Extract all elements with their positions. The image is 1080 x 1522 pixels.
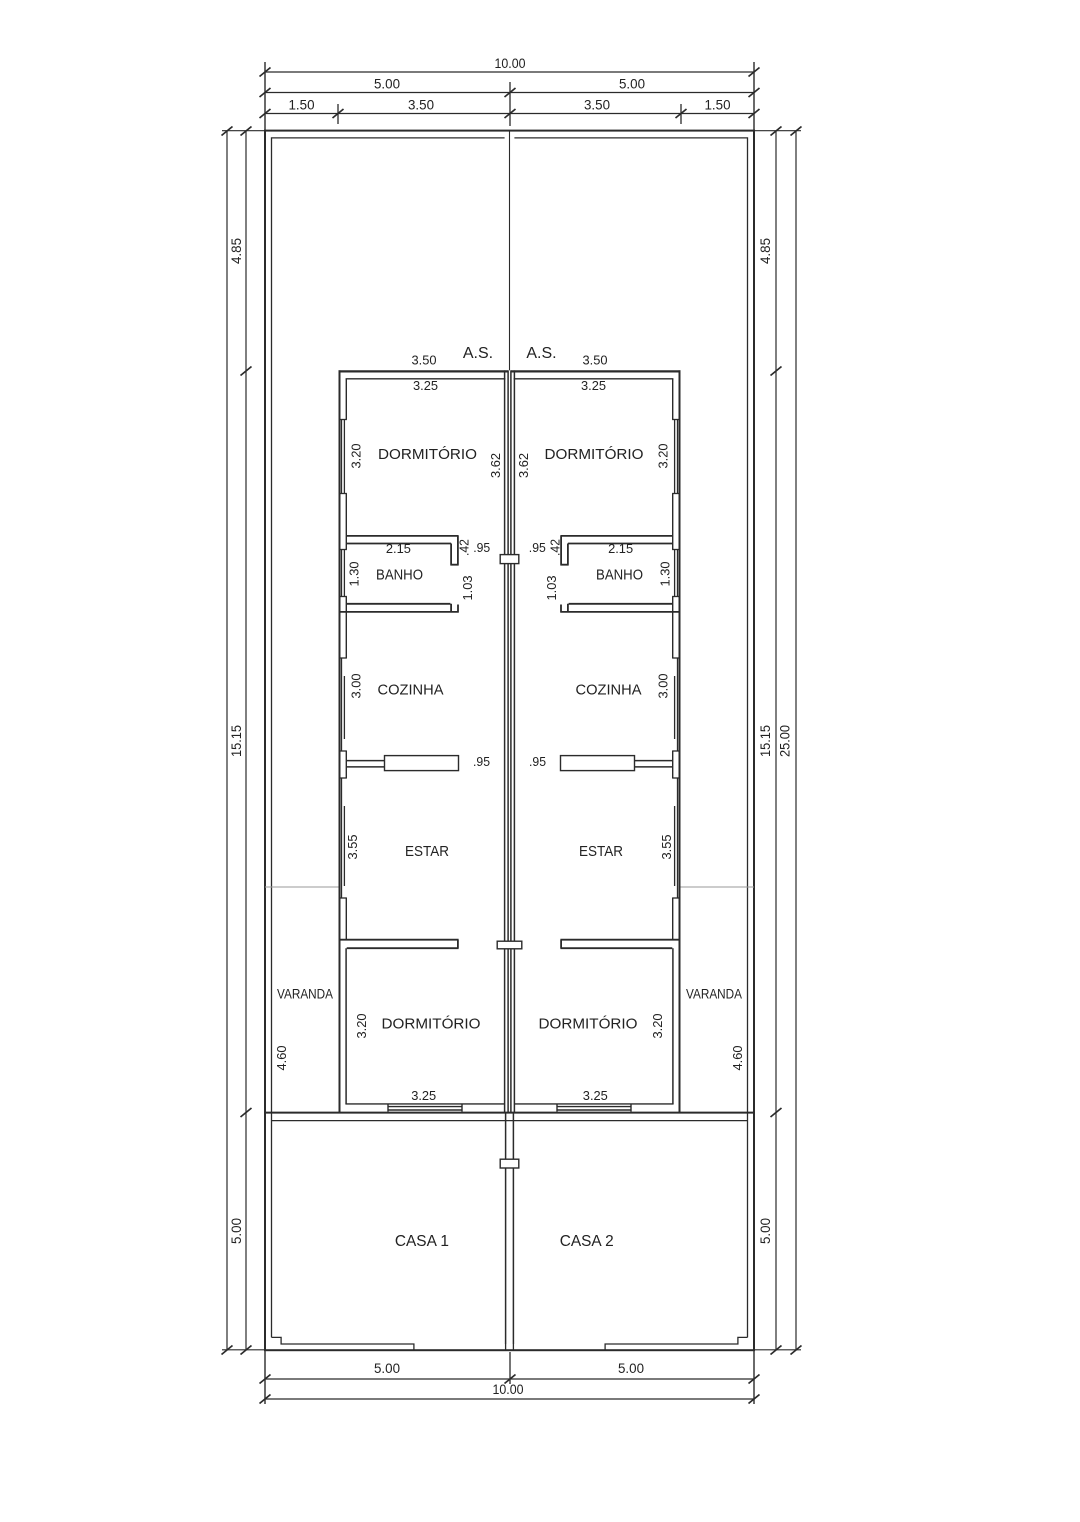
svg-text:ESTAR: ESTAR xyxy=(579,843,623,860)
svg-text:4.85: 4.85 xyxy=(229,238,244,264)
svg-text:VARANDA: VARANDA xyxy=(277,987,333,1002)
svg-text:3.20: 3.20 xyxy=(354,1014,369,1039)
svg-text:.95: .95 xyxy=(473,540,490,555)
svg-text:.42: .42 xyxy=(457,539,472,556)
svg-text:CASA 2: CASA 2 xyxy=(560,1233,614,1250)
svg-text:3.25: 3.25 xyxy=(413,378,438,393)
svg-text:3.50: 3.50 xyxy=(408,98,434,113)
svg-text:1.30: 1.30 xyxy=(658,562,673,587)
svg-text:1.50: 1.50 xyxy=(705,98,731,113)
svg-text:5.00: 5.00 xyxy=(374,1361,400,1376)
svg-text:A.S.: A.S. xyxy=(463,345,493,362)
svg-text:DORMITÓRIO: DORMITÓRIO xyxy=(539,1016,638,1033)
svg-text:4.60: 4.60 xyxy=(730,1046,745,1071)
svg-text:3.00: 3.00 xyxy=(349,674,364,699)
svg-text:1.03: 1.03 xyxy=(460,576,475,601)
svg-text:5.00: 5.00 xyxy=(374,77,400,92)
svg-text:3.55: 3.55 xyxy=(659,835,674,860)
svg-text:.42: .42 xyxy=(547,539,562,556)
svg-text:DORMITÓRIO: DORMITÓRIO xyxy=(378,446,477,463)
svg-text:3.20: 3.20 xyxy=(349,444,364,469)
svg-text:VARANDA: VARANDA xyxy=(686,987,742,1002)
svg-text:3.50: 3.50 xyxy=(584,98,610,113)
svg-text:3.00: 3.00 xyxy=(656,674,671,699)
svg-text:5.00: 5.00 xyxy=(618,1361,644,1376)
svg-text:5.00: 5.00 xyxy=(619,77,645,92)
svg-text:3.25: 3.25 xyxy=(411,1088,436,1103)
svg-text:3.20: 3.20 xyxy=(650,1014,665,1039)
svg-text:3.62: 3.62 xyxy=(516,453,531,478)
svg-text:DORMITÓRIO: DORMITÓRIO xyxy=(545,446,644,463)
svg-text:COZINHA: COZINHA xyxy=(576,682,642,699)
svg-text:ESTAR: ESTAR xyxy=(405,843,449,860)
svg-text:DORMITÓRIO: DORMITÓRIO xyxy=(382,1016,481,1033)
svg-text:3.50: 3.50 xyxy=(412,353,437,368)
svg-text:2.15: 2.15 xyxy=(386,541,411,556)
svg-text:10.00: 10.00 xyxy=(495,56,526,71)
svg-text:3.62: 3.62 xyxy=(488,453,503,478)
svg-text:A.S.: A.S. xyxy=(526,345,556,362)
svg-text:5.00: 5.00 xyxy=(229,1218,244,1244)
svg-text:3.25: 3.25 xyxy=(583,1088,608,1103)
svg-text:3.25: 3.25 xyxy=(581,378,606,393)
svg-text:3.55: 3.55 xyxy=(345,835,360,860)
svg-text:CASA 1: CASA 1 xyxy=(395,1233,449,1250)
svg-text:COZINHA: COZINHA xyxy=(378,682,444,699)
svg-text:.95: .95 xyxy=(529,754,546,769)
svg-text:15.15: 15.15 xyxy=(229,725,244,757)
svg-text:4.60: 4.60 xyxy=(274,1046,289,1071)
svg-text:.95: .95 xyxy=(473,754,490,769)
svg-text:25.00: 25.00 xyxy=(778,725,793,757)
svg-text:1.03: 1.03 xyxy=(544,576,559,601)
svg-text:15.15: 15.15 xyxy=(758,725,773,757)
svg-text:3.50: 3.50 xyxy=(583,353,608,368)
svg-text:.95: .95 xyxy=(529,540,546,555)
svg-text:3.20: 3.20 xyxy=(656,444,671,469)
svg-text:BANHO: BANHO xyxy=(376,567,423,584)
svg-text:2.15: 2.15 xyxy=(608,541,633,556)
svg-text:5.00: 5.00 xyxy=(758,1218,773,1244)
svg-text:1.50: 1.50 xyxy=(289,98,315,113)
svg-text:4.85: 4.85 xyxy=(758,238,773,264)
svg-text:1.30: 1.30 xyxy=(347,562,362,587)
svg-text:10.00: 10.00 xyxy=(493,1382,524,1397)
svg-text:BANHO: BANHO xyxy=(596,567,643,584)
